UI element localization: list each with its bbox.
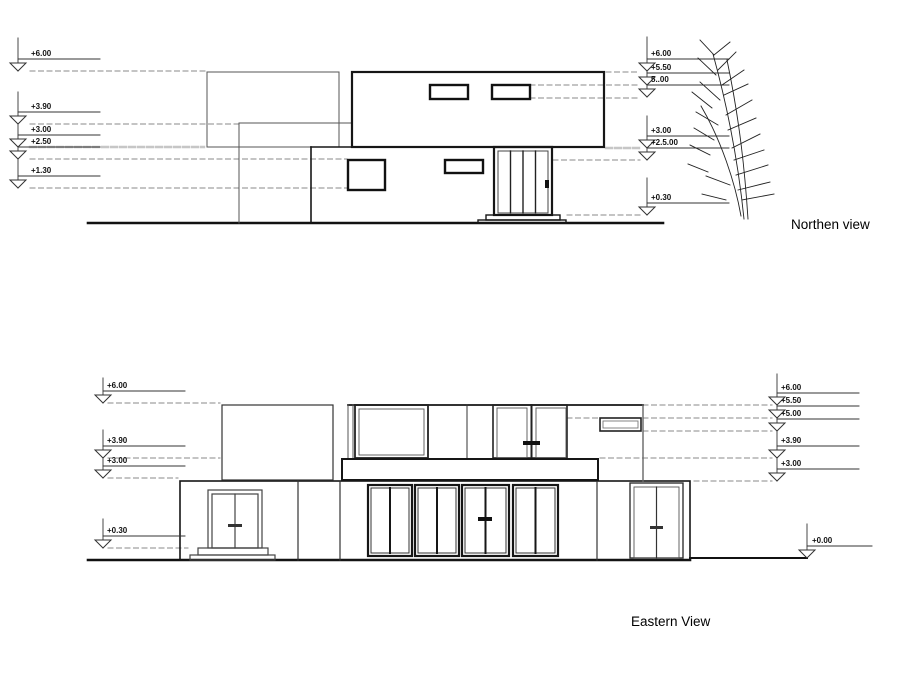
level-label: +5.50	[781, 396, 801, 406]
elevation-drawings	[0, 0, 900, 675]
eastern-left-door	[190, 490, 275, 560]
level-label: +0.30	[651, 193, 671, 203]
level-label: +6.00	[651, 49, 671, 59]
level-label: 5..00	[651, 75, 669, 85]
level-label: +2.5.00	[651, 138, 678, 148]
northern-upper-volume	[352, 72, 604, 147]
level-label: +6.00	[781, 383, 801, 393]
upper-small-window	[600, 418, 641, 431]
upper-window-1	[430, 85, 468, 99]
eastern-view-title: Eastern View	[631, 614, 710, 629]
lower-square-window	[348, 160, 385, 190]
tree-sketch	[688, 40, 774, 219]
balcony-band	[342, 459, 598, 480]
level-label: +5.00	[781, 409, 801, 419]
eastern-right-door	[630, 483, 683, 558]
northern-lower-floor	[311, 147, 494, 223]
eastern-view-drawing	[88, 374, 872, 560]
northern-view-title: Northen view	[791, 217, 870, 232]
eastern-upper-volume-left	[222, 405, 333, 480]
lower-strip-window	[445, 160, 483, 173]
level-label: +0.00	[812, 536, 832, 546]
eastern-level-triangles	[95, 395, 815, 558]
northern-entrance-door	[494, 147, 552, 215]
level-label: +3.00	[31, 125, 51, 135]
door-handle	[545, 180, 549, 188]
door-handle	[523, 441, 540, 445]
level-label: +1.30	[31, 166, 51, 176]
level-label: +5.50	[651, 63, 671, 73]
level-label: +3.00	[651, 126, 671, 136]
eastern-level-markers	[103, 374, 872, 558]
level-label: +2.50	[31, 137, 51, 147]
northern-level-triangles	[10, 63, 655, 215]
level-label: +3.00	[781, 459, 801, 469]
upper-glazed-panel	[355, 405, 428, 458]
level-label: +3.90	[107, 436, 127, 446]
glazed-door-wall	[368, 485, 558, 556]
level-label: +6.00	[31, 49, 51, 59]
level-label: +0.30	[107, 526, 127, 536]
eastern-wall-joints	[298, 480, 597, 560]
level-label: +3.90	[781, 436, 801, 446]
level-label: +3.00	[107, 456, 127, 466]
upper-balcony-door	[493, 405, 567, 458]
level-label: +3.90	[31, 102, 51, 112]
door-handle	[650, 526, 663, 529]
door-handle	[228, 524, 242, 527]
upper-window-2	[492, 85, 530, 99]
door-handle	[478, 517, 492, 521]
drawing-sheet: +6.00 +3.90 +3.00 +2.50 +1.30 +6.00 +5.5…	[0, 0, 900, 675]
level-label: +6.00	[107, 381, 127, 391]
